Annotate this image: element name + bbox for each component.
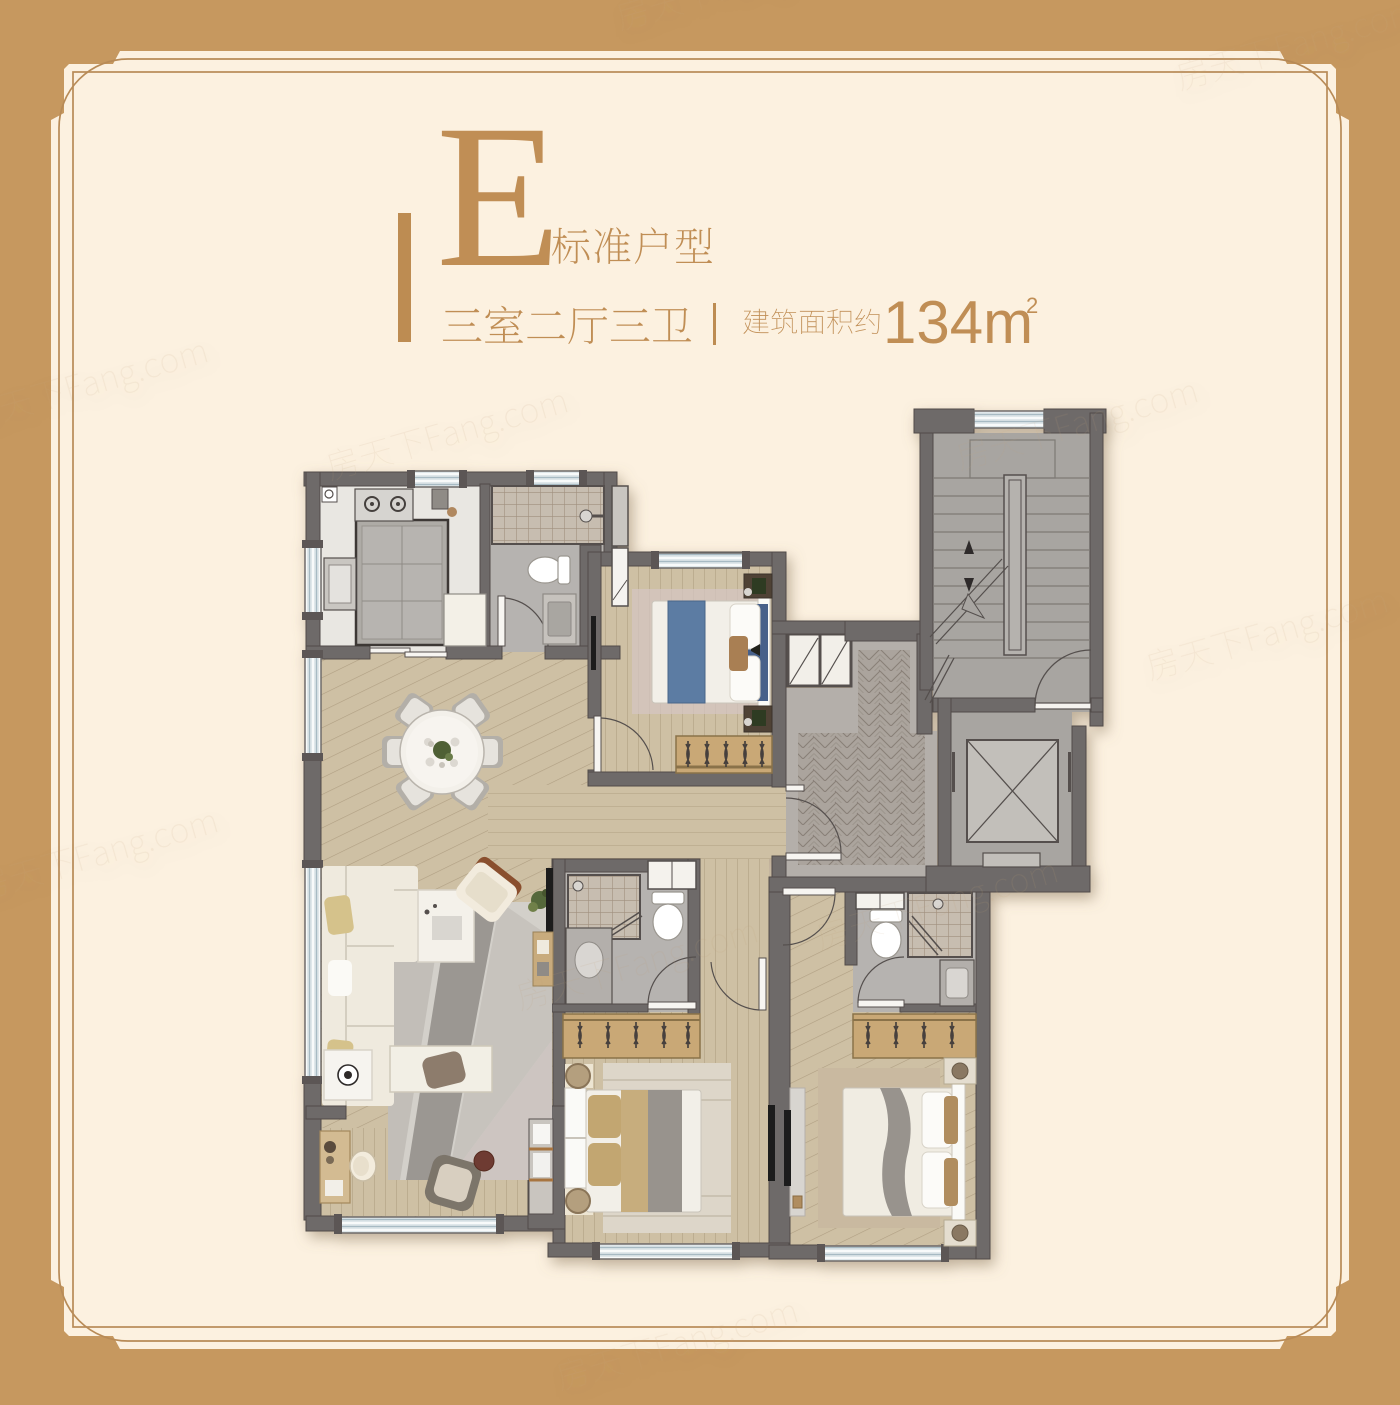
svg-text:E: E xyxy=(436,83,561,310)
svg-text:134m: 134m xyxy=(883,289,1033,356)
svg-text:2: 2 xyxy=(1026,293,1038,318)
